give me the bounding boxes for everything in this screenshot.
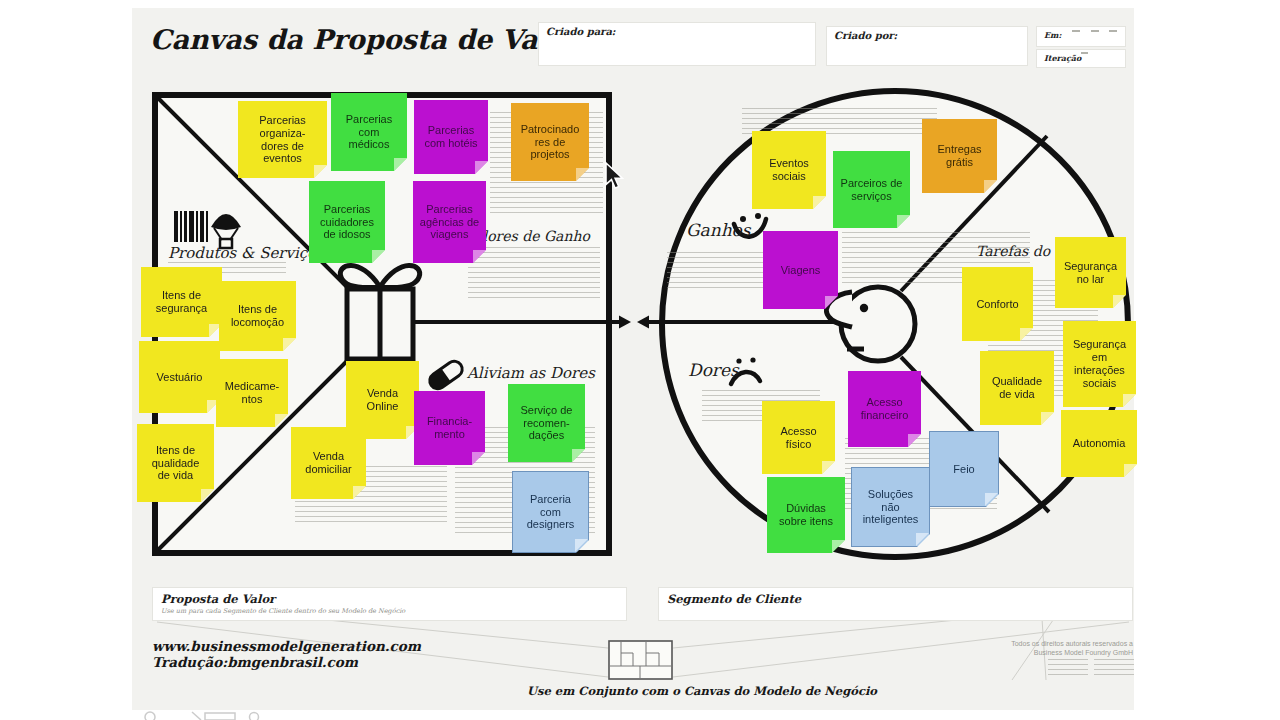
sticky-note[interactable]: Venda domiciliar: [291, 427, 366, 499]
canvas-page: Canvas da Proposta de Valor Criado para:…: [0, 0, 1280, 720]
copyright-line2: Business Model Foundry GmbH: [988, 649, 1133, 656]
sticky-note-text: Venda Online: [365, 385, 401, 415]
sticky-note[interactable]: Conforto: [962, 267, 1033, 341]
sticky-note-text: Parcerias cuidadores de idosos: [318, 201, 376, 244]
sticky-note[interactable]: Parcerias agências de viagens: [413, 181, 486, 263]
website-link[interactable]: www.businessmodelgeneration.com: [152, 638, 421, 654]
sticky-note-text: Autonomia: [1071, 435, 1128, 452]
page-title: Canvas da Proposta de Valor: [150, 24, 580, 55]
sticky-note[interactable]: Eventos sociais: [752, 131, 826, 209]
sticky-note-text: Medicame- ntos: [223, 378, 281, 408]
sticky-note[interactable]: Dúvidas sobre itens: [767, 477, 845, 553]
date-tick: [1072, 30, 1080, 32]
bottom-strip-icons: [145, 712, 259, 720]
products-services-label: Produtos & Serviços: [168, 244, 324, 262]
sticky-note[interactable]: Parceria com designers: [512, 471, 589, 553]
sticky-note-text: Eventos sociais: [767, 155, 811, 185]
sticky-note-text: Qualidade de vida: [990, 373, 1044, 403]
sticky-note-text: Acesso financeiro: [859, 394, 911, 424]
created-by-field[interactable]: Criado por:: [826, 26, 1028, 66]
sticky-note[interactable]: Serviço de recomen- dações: [508, 384, 585, 462]
sticky-note-text: Feio: [951, 461, 976, 478]
sticky-note-text: Vestuário: [155, 369, 205, 386]
sticky-note-text: Parcerias organiza- dores de eventos: [257, 112, 307, 168]
sticky-note[interactable]: Parcerias cuidadores de idosos: [309, 181, 385, 263]
sticky-note-text: Soluções não inteligentes: [861, 486, 921, 529]
placeholder-text: [1048, 659, 1088, 675]
sticky-note[interactable]: Medicame- ntos: [216, 359, 288, 427]
sticky-note[interactable]: Parceiros de serviços: [833, 151, 910, 228]
sticky-note-text: Patrocinado res de projetos: [519, 121, 582, 164]
sticky-note-text: Dúvidas sobre itens: [777, 500, 835, 530]
sticky-note-text: Itens de segurança: [154, 287, 209, 317]
companion-note: Use em Conjunto com o Canvas do Modelo d…: [527, 684, 877, 698]
sticky-note[interactable]: Soluções não inteligentes: [851, 467, 930, 547]
sticky-note-text: Parceria com designers: [525, 491, 577, 534]
sticky-note-text: Conforto: [974, 296, 1020, 313]
sticky-note[interactable]: Acesso financeiro: [848, 371, 921, 447]
sticky-note[interactable]: Autonomia: [1061, 410, 1137, 477]
sticky-note[interactable]: Entregas grátis: [922, 119, 997, 193]
translation-credit: Tradução:bmgenbrasil.com: [152, 654, 358, 670]
copyright-line1: Todos os direitos autorais reservados a: [988, 640, 1133, 647]
sticky-note[interactable]: Patrocinado res de projetos: [511, 103, 589, 181]
sticky-note-text: Parceiros de serviços: [839, 175, 905, 205]
sticky-note[interactable]: Segurança em interações sociais: [1063, 321, 1136, 407]
value-proposition-band-subtitle: Use um para cada Segmento de Cliente den…: [153, 606, 626, 615]
sticky-note[interactable]: Viagens: [763, 231, 838, 309]
sticky-note[interactable]: Qualidade de vida: [980, 351, 1054, 425]
sticky-note[interactable]: Itens de qualidade de vida: [137, 424, 214, 502]
date-label: Em:: [1037, 27, 1125, 40]
sticky-note[interactable]: Parcerias com médicos: [331, 93, 407, 171]
sticky-note[interactable]: Parcerias com hotéis: [414, 100, 488, 174]
pains-label: Dores: [688, 360, 739, 380]
sticky-note[interactable]: Acesso físico: [762, 401, 835, 474]
date-tick: [1091, 30, 1099, 32]
sticky-note-text: Viagens: [779, 262, 823, 279]
sticky-note-text: Itens de locomoção: [229, 301, 286, 331]
sticky-note[interactable]: Itens de segurança: [141, 267, 222, 337]
sticky-note-text: Serviço de recomen- dações: [519, 402, 575, 445]
sticky-note-text: Parcerias agências de viagens: [418, 201, 481, 244]
created-for-label: Criado para:: [539, 23, 815, 37]
pain-relievers-label: Aliviam as Dores: [467, 364, 595, 382]
sticky-note-text: Venda domiciliar: [303, 448, 353, 478]
sticky-note[interactable]: Itens de locomoção: [219, 281, 296, 351]
gains-label: Ganhos: [686, 220, 751, 240]
customer-segment-band: Segmento de Cliente: [658, 587, 1133, 621]
sticky-note-text: Parcerias com hotéis: [422, 122, 479, 152]
placeholder-text: [1094, 659, 1134, 675]
sticky-note-text: Financia- mento: [425, 413, 474, 443]
sticky-note[interactable]: Parcerias organiza- dores de eventos: [238, 101, 327, 178]
sticky-note-text: Segurança em interações sociais: [1071, 336, 1128, 392]
sticky-note[interactable]: Segurança no lar: [1055, 237, 1126, 308]
customer-segment-band-title: Segmento de Cliente: [659, 588, 1132, 606]
sticky-note-text: Acesso físico: [778, 423, 818, 453]
value-proposition-band: Proposta de Valor Use um para cada Segme…: [152, 587, 627, 621]
created-by-label: Criado por:: [827, 27, 1027, 41]
placeholder-text: [468, 247, 600, 299]
created-for-field[interactable]: Criado para:: [538, 22, 816, 66]
sticky-note-text: Segurança no lar: [1062, 258, 1119, 288]
date-tick: [1109, 30, 1117, 32]
sticky-note[interactable]: Financia- mento: [414, 391, 485, 465]
sticky-note-text: Parcerias com médicos: [344, 111, 394, 154]
sticky-note[interactable]: Vestuário: [139, 341, 220, 413]
sticky-note-text: Entregas grátis: [935, 141, 983, 171]
iteration-tick: [1081, 52, 1088, 54]
value-proposition-band-title: Proposta de Valor: [153, 588, 626, 606]
sticky-note-text: Itens de qualidade de vida: [150, 442, 202, 485]
sticky-note[interactable]: Feio: [929, 431, 999, 507]
